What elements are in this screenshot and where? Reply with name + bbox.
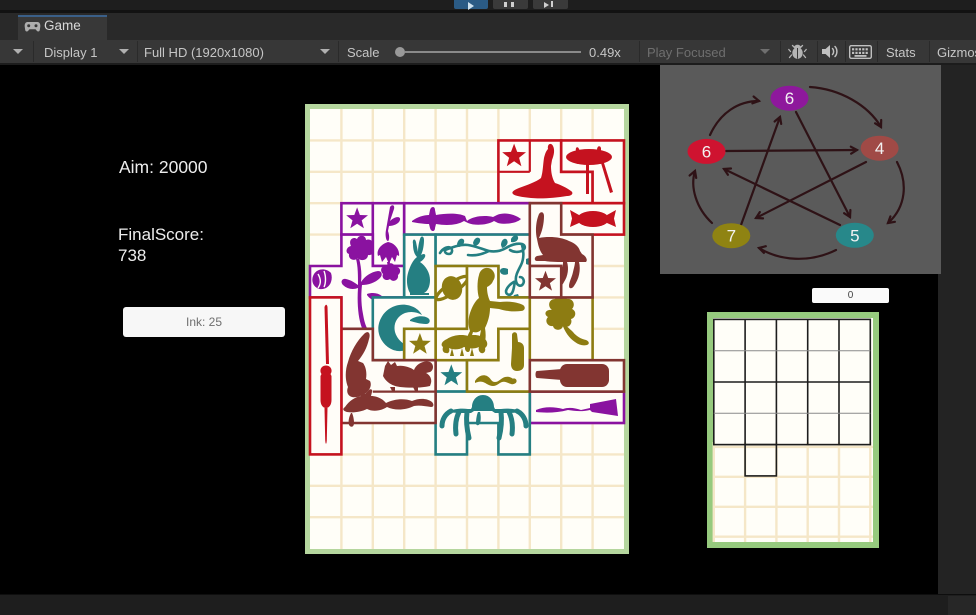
svg-text:6: 6 bbox=[702, 142, 711, 161]
svg-text:4: 4 bbox=[875, 139, 884, 158]
svg-text:6: 6 bbox=[785, 89, 794, 108]
svg-text:7: 7 bbox=[727, 227, 736, 246]
svg-text:5: 5 bbox=[850, 226, 859, 245]
